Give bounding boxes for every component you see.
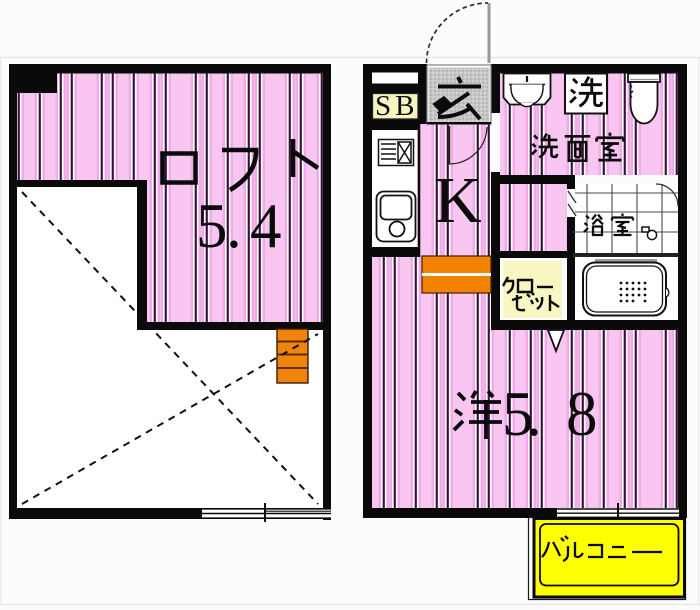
svg-text:8: 8	[566, 379, 598, 449]
svg-text:.: .	[226, 191, 242, 261]
svg-text:.: .	[526, 379, 542, 449]
svg-text:SB: SB	[375, 90, 418, 122]
svg-text:K: K	[434, 164, 482, 237]
svg-text:4: 4	[250, 191, 282, 261]
svg-text:5: 5	[196, 191, 228, 261]
